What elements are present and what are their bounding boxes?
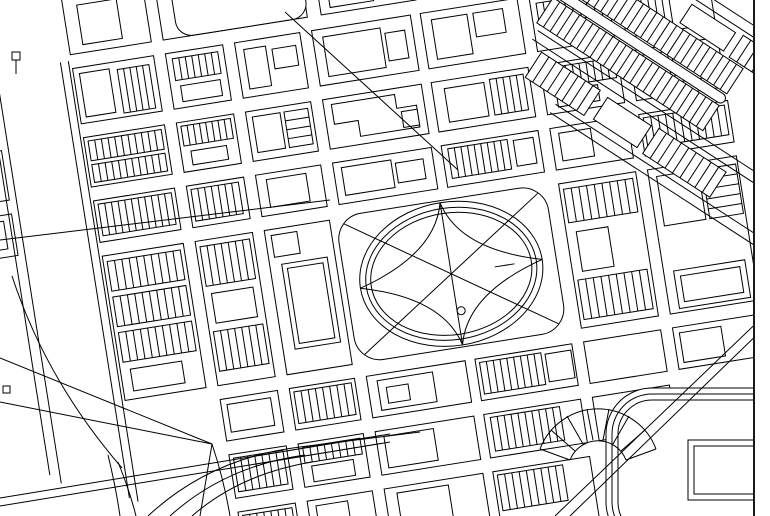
map-canvas xyxy=(0,0,770,516)
map-viewport[interactable] xyxy=(0,0,770,516)
